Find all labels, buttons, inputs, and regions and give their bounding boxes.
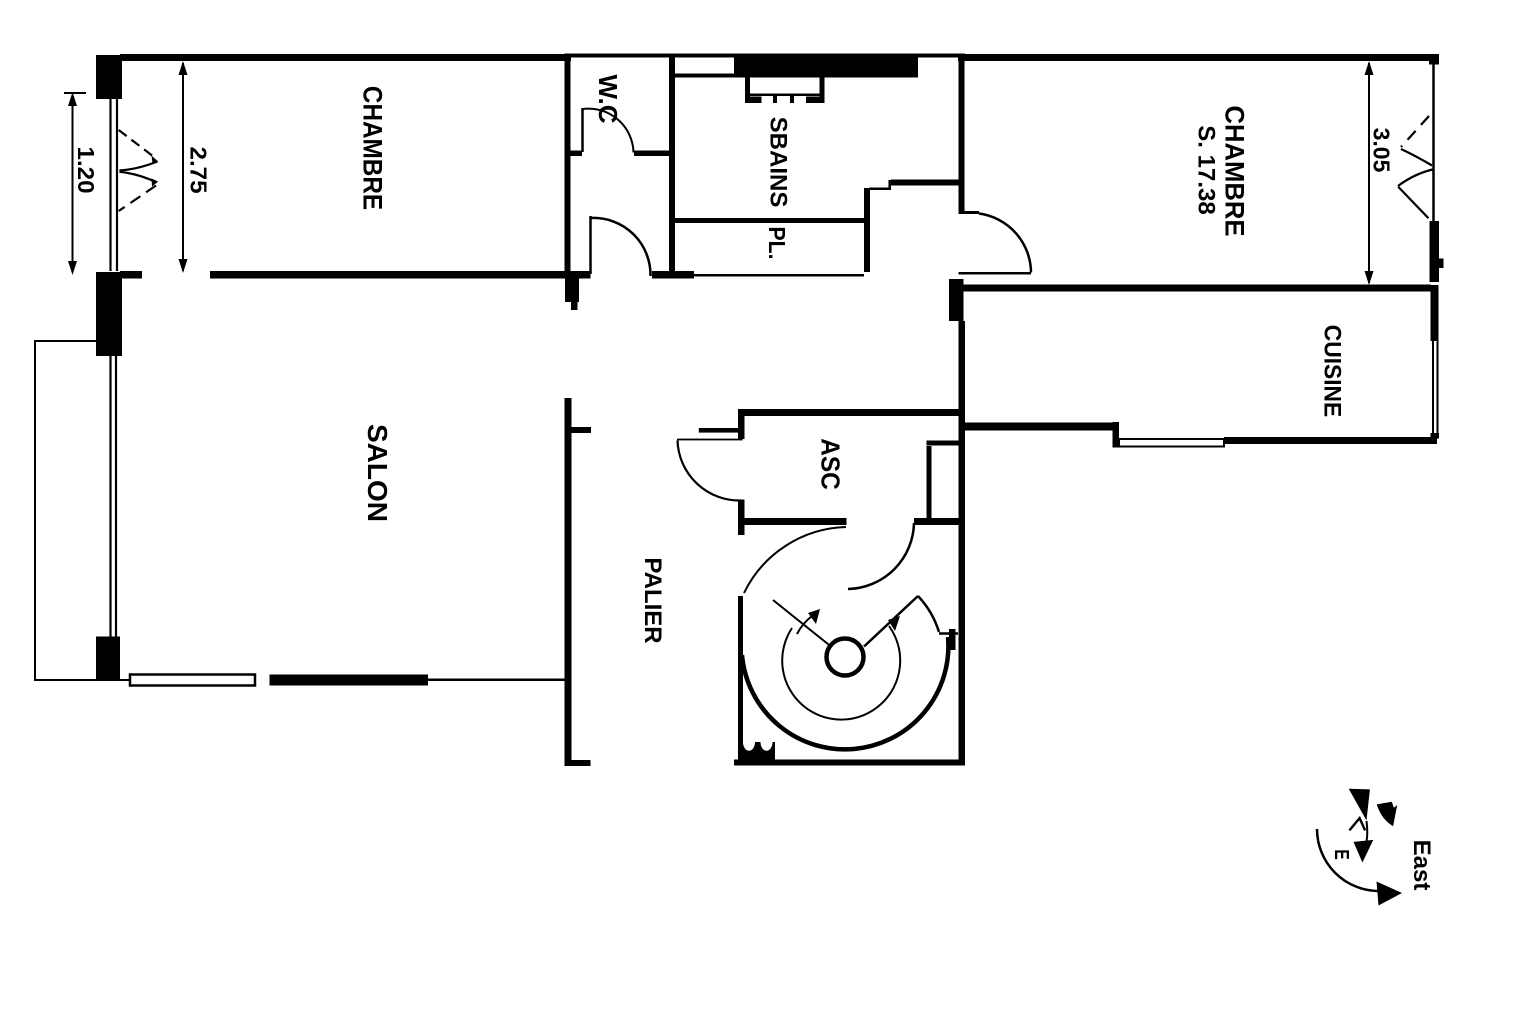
svg-text:CHAMBRE: CHAMBRE — [357, 86, 386, 210]
svg-text:W.C: W.C — [593, 74, 623, 123]
svg-text:East: East — [1408, 840, 1435, 891]
svg-text:PL.: PL. — [764, 227, 790, 260]
svg-text:E: E — [1330, 849, 1352, 859]
svg-text:PALIER: PALIER — [639, 557, 666, 643]
svg-text:3.05: 3.05 — [1369, 128, 1395, 173]
svg-text:S. 17.38: S. 17.38 — [1193, 125, 1220, 214]
svg-text:SALON: SALON — [362, 424, 393, 522]
svg-text:CHAMBRE: CHAMBRE — [1219, 105, 1250, 236]
svg-text:CUISINE: CUISINE — [1319, 325, 1346, 417]
svg-text:ASC: ASC — [815, 438, 844, 490]
svg-text:SBAINS: SBAINS — [765, 117, 792, 208]
svg-text:1.20: 1.20 — [73, 147, 98, 194]
svg-text:2.75: 2.75 — [186, 147, 211, 194]
